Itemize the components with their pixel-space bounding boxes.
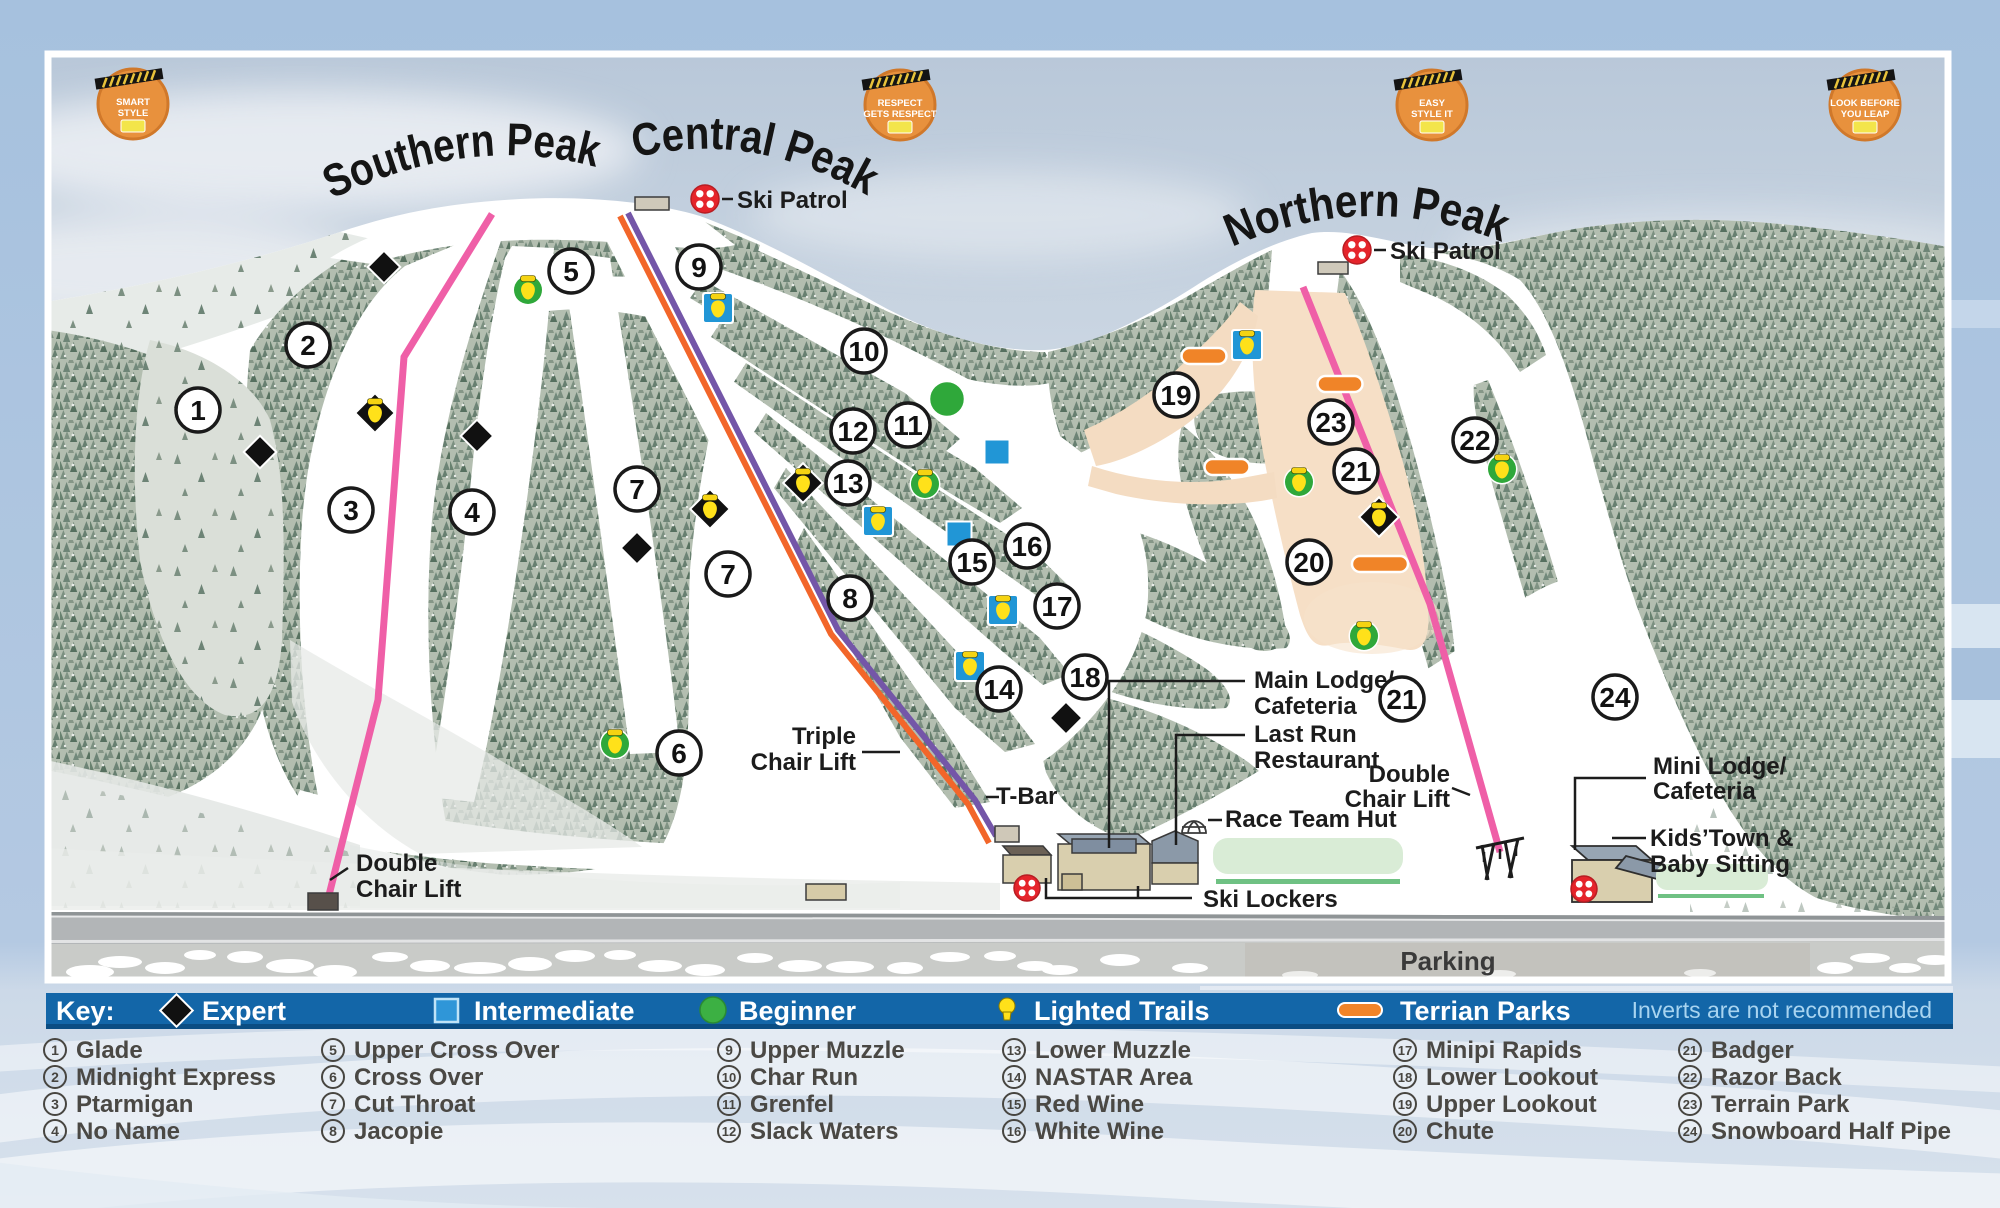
svg-text:Upper Muzzle: Upper Muzzle xyxy=(750,1037,905,1064)
svg-text:STYLE: STYLE xyxy=(118,108,149,119)
svg-text:Triple: Triple xyxy=(792,723,856,750)
svg-text:Red Wine: Red Wine xyxy=(1035,1091,1144,1118)
svg-text:Grenfel: Grenfel xyxy=(750,1091,834,1118)
svg-text:19: 19 xyxy=(1160,380,1191,411)
svg-text:NASTAR Area: NASTAR Area xyxy=(1035,1064,1193,1091)
svg-text:LOOK BEFORE: LOOK BEFORE xyxy=(1830,98,1900,109)
svg-text:Intermediate: Intermediate xyxy=(474,996,635,1026)
svg-text:Baby Sitting: Baby Sitting xyxy=(1650,851,1790,878)
svg-text:Main Lodge/: Main Lodge/ xyxy=(1254,667,1394,694)
svg-text:Kids’Town &: Kids’Town & xyxy=(1650,825,1794,852)
svg-text:5: 5 xyxy=(563,256,579,287)
svg-text:8: 8 xyxy=(842,583,858,614)
svg-text:Char Run: Char Run xyxy=(750,1064,858,1091)
svg-text:Ptarmigan: Ptarmigan xyxy=(76,1091,193,1118)
svg-text:Terrain Park: Terrain Park xyxy=(1711,1091,1850,1118)
svg-text:1: 1 xyxy=(190,395,206,426)
svg-text:13: 13 xyxy=(832,468,863,499)
svg-text:Glade: Glade xyxy=(76,1037,143,1064)
svg-text:7: 7 xyxy=(720,559,736,590)
svg-text:SMART: SMART xyxy=(116,97,150,108)
svg-text:Jacopie: Jacopie xyxy=(354,1118,443,1145)
svg-text:Beginner: Beginner xyxy=(739,996,857,1026)
svg-text:4: 4 xyxy=(464,497,480,528)
svg-text:Cross Over: Cross Over xyxy=(354,1064,483,1091)
svg-text:Restaurant: Restaurant xyxy=(1254,747,1379,774)
svg-text:Ski Patrol: Ski Patrol xyxy=(737,187,848,214)
svg-text:22: 22 xyxy=(1683,1070,1697,1085)
svg-text:5: 5 xyxy=(329,1042,337,1058)
svg-text:10: 10 xyxy=(848,336,879,367)
svg-text:Lower Lookout: Lower Lookout xyxy=(1426,1064,1598,1091)
svg-text:12: 12 xyxy=(837,416,868,447)
svg-text:EASY: EASY xyxy=(1419,98,1446,109)
svg-text:Minipi Rapids: Minipi Rapids xyxy=(1426,1037,1582,1064)
svg-text:14: 14 xyxy=(1007,1070,1022,1085)
svg-text:Ski Lockers: Ski Lockers xyxy=(1203,886,1338,913)
svg-text:7: 7 xyxy=(629,474,645,505)
svg-text:Inverts are not recommended: Inverts are not recommended xyxy=(1632,997,1932,1023)
svg-text:Cafeteria: Cafeteria xyxy=(1653,778,1756,805)
svg-text:Badger: Badger xyxy=(1711,1037,1794,1064)
svg-text:Midnight Express: Midnight Express xyxy=(76,1064,276,1091)
svg-text:17: 17 xyxy=(1041,591,1072,622)
svg-text:Mini Lodge/: Mini Lodge/ xyxy=(1653,753,1787,780)
svg-text:19: 19 xyxy=(1398,1097,1412,1112)
svg-text:Double: Double xyxy=(356,850,437,877)
svg-text:22: 22 xyxy=(1459,425,1490,456)
svg-text:13: 13 xyxy=(1007,1043,1021,1058)
svg-text:Lighted Trails: Lighted Trails xyxy=(1034,996,1210,1026)
svg-text:14: 14 xyxy=(983,674,1015,705)
svg-text:Cut Throat: Cut Throat xyxy=(354,1091,475,1118)
svg-text:20: 20 xyxy=(1293,547,1324,578)
svg-text:Razor Back: Razor Back xyxy=(1711,1064,1842,1091)
svg-text:6: 6 xyxy=(329,1069,337,1085)
svg-text:Chair Lift: Chair Lift xyxy=(356,876,461,903)
svg-text:Last Run: Last Run xyxy=(1254,721,1357,748)
svg-text:7: 7 xyxy=(329,1096,337,1112)
svg-text:Upper Cross Over: Upper Cross Over xyxy=(354,1037,559,1064)
svg-text:1: 1 xyxy=(51,1042,59,1058)
svg-text:15: 15 xyxy=(956,547,987,578)
svg-text:21: 21 xyxy=(1683,1043,1697,1058)
svg-text:16: 16 xyxy=(1007,1124,1021,1139)
svg-text:21: 21 xyxy=(1340,456,1371,487)
svg-text:23: 23 xyxy=(1315,407,1346,438)
svg-text:15: 15 xyxy=(1007,1097,1021,1112)
svg-text:12: 12 xyxy=(722,1124,736,1139)
svg-text:Cafeteria: Cafeteria xyxy=(1254,693,1357,720)
svg-text:Slack Waters: Slack Waters xyxy=(750,1118,899,1145)
svg-text:Snowboard Half Pipe: Snowboard Half Pipe xyxy=(1711,1118,1951,1145)
svg-text:3: 3 xyxy=(51,1096,59,1112)
svg-text:11: 11 xyxy=(893,410,923,441)
svg-text:Parking: Parking xyxy=(1400,946,1495,976)
svg-text:21: 21 xyxy=(1386,684,1417,715)
svg-text:Upper Lookout: Upper Lookout xyxy=(1426,1091,1597,1118)
svg-text:Double: Double xyxy=(1369,761,1450,788)
svg-text:Chair Lift: Chair Lift xyxy=(751,749,856,776)
svg-text:24: 24 xyxy=(1683,1124,1698,1139)
svg-text:20: 20 xyxy=(1398,1124,1412,1139)
svg-text:8: 8 xyxy=(329,1123,337,1139)
svg-text:RESPECT: RESPECT xyxy=(878,98,923,109)
svg-text:16: 16 xyxy=(1011,531,1042,562)
svg-text:Expert: Expert xyxy=(202,996,286,1026)
svg-text:9: 9 xyxy=(691,252,707,283)
svg-text:4: 4 xyxy=(51,1123,59,1139)
svg-text:GETS RESPECT: GETS RESPECT xyxy=(863,109,937,120)
svg-text:Terrian Parks: Terrian Parks xyxy=(1400,996,1571,1026)
svg-text:9: 9 xyxy=(725,1042,733,1058)
svg-text:STYLE IT: STYLE IT xyxy=(1411,109,1453,120)
svg-text:No Name: No Name xyxy=(76,1118,180,1145)
svg-text:3: 3 xyxy=(343,495,359,526)
svg-text:18: 18 xyxy=(1069,662,1100,693)
svg-text:T-Bar: T-Bar xyxy=(996,783,1057,810)
svg-text:Lower Muzzle: Lower Muzzle xyxy=(1035,1037,1191,1064)
svg-text:2: 2 xyxy=(300,330,316,361)
svg-text:YOU LEAP: YOU LEAP xyxy=(1841,109,1890,120)
svg-text:24: 24 xyxy=(1599,682,1631,713)
svg-text:White Wine: White Wine xyxy=(1035,1118,1164,1145)
svg-text:Key:: Key: xyxy=(56,996,115,1026)
svg-text:17: 17 xyxy=(1398,1043,1412,1058)
svg-text:11: 11 xyxy=(722,1097,736,1112)
svg-text:10: 10 xyxy=(722,1070,736,1085)
svg-text:2: 2 xyxy=(51,1069,59,1085)
svg-text:18: 18 xyxy=(1398,1070,1412,1085)
svg-text:23: 23 xyxy=(1683,1097,1697,1112)
svg-text:Chair Lift: Chair Lift xyxy=(1345,786,1450,813)
svg-text:Chute: Chute xyxy=(1426,1118,1494,1145)
svg-text:6: 6 xyxy=(671,738,687,769)
